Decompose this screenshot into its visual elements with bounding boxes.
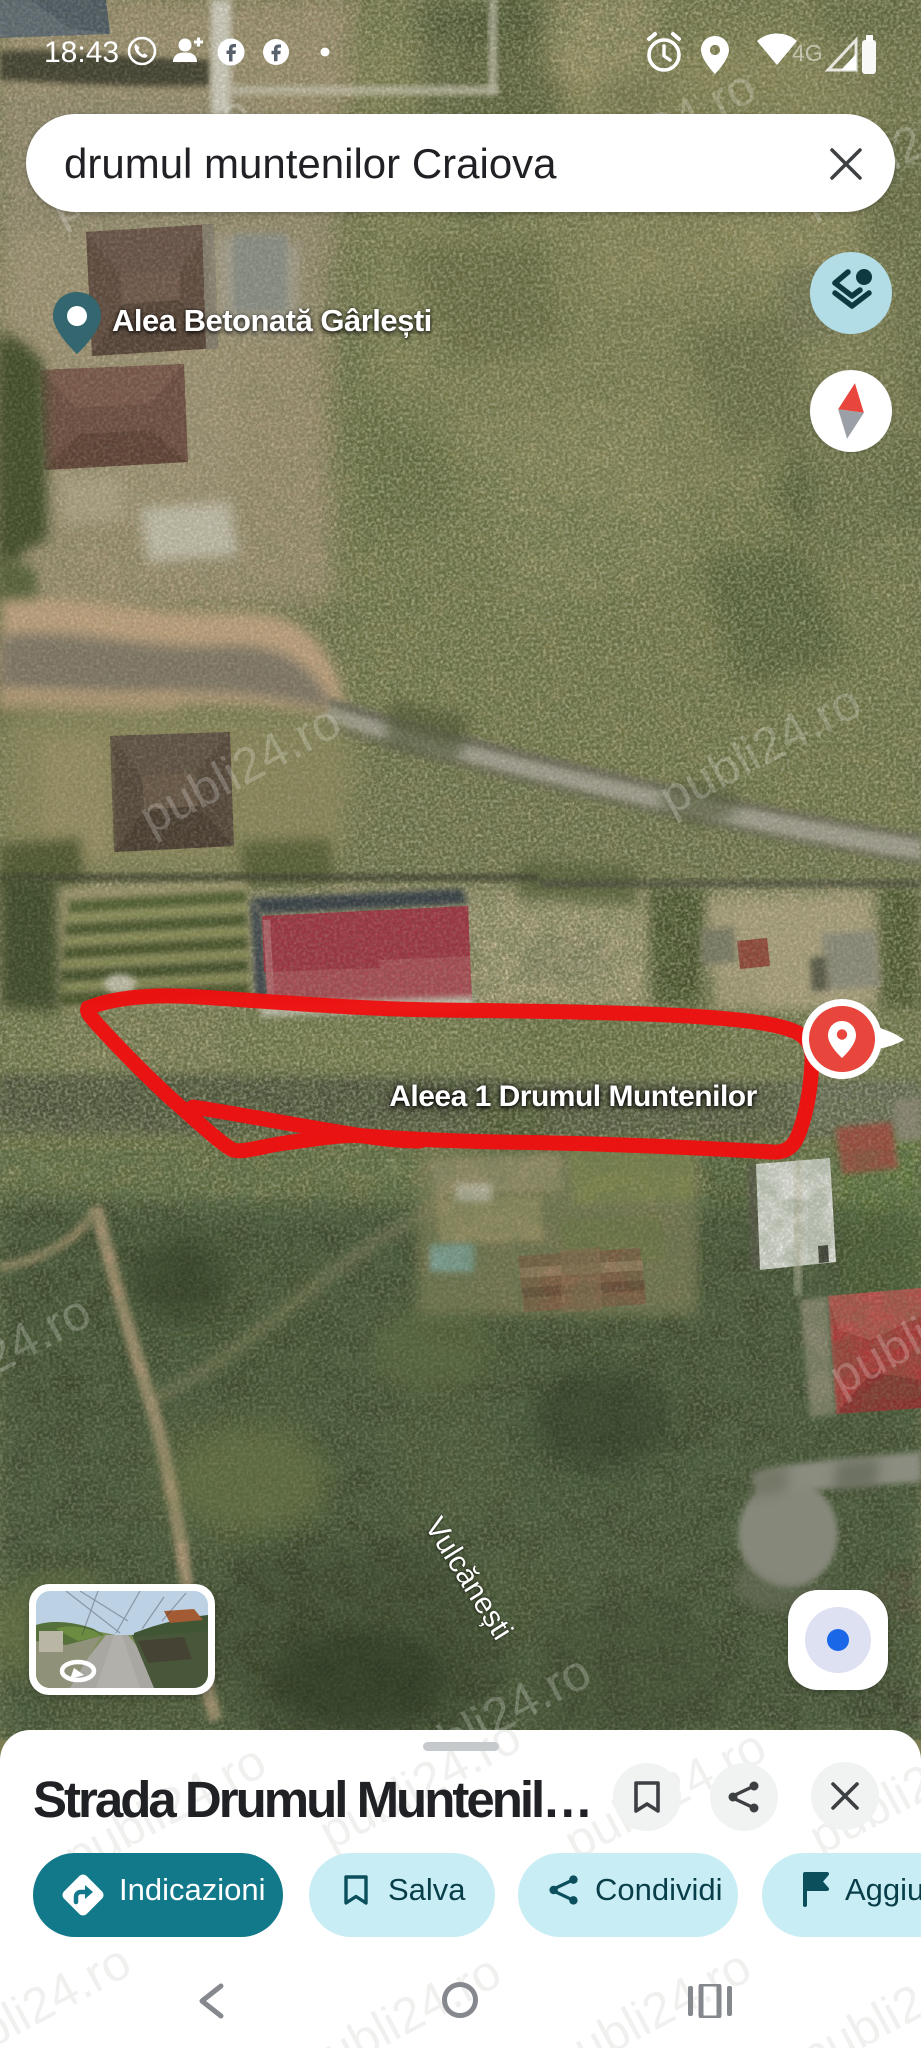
svg-text:4G: 4G — [792, 40, 823, 66]
